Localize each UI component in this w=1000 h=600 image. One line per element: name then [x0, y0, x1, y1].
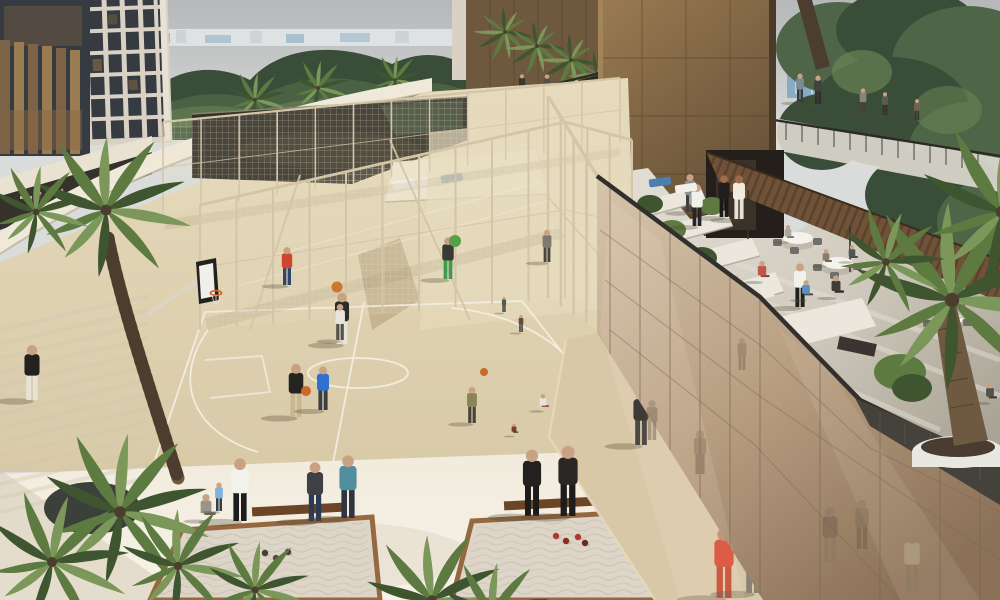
padel-cage-fences — [163, 78, 632, 340]
ball — [301, 386, 311, 396]
architectural-rendering — [0, 0, 1000, 600]
boule — [582, 540, 588, 546]
rooftop-sports-terrace-render — [0, 0, 1000, 600]
boule — [262, 550, 268, 556]
distant-city-skyline — [125, 29, 470, 46]
ball — [332, 282, 343, 293]
boule — [575, 534, 581, 540]
ball — [449, 235, 461, 247]
ball — [480, 368, 488, 376]
boule — [553, 533, 559, 539]
chair — [790, 247, 799, 254]
left-residential-tower — [81, 0, 172, 145]
boule — [563, 538, 569, 544]
chair — [813, 238, 822, 245]
